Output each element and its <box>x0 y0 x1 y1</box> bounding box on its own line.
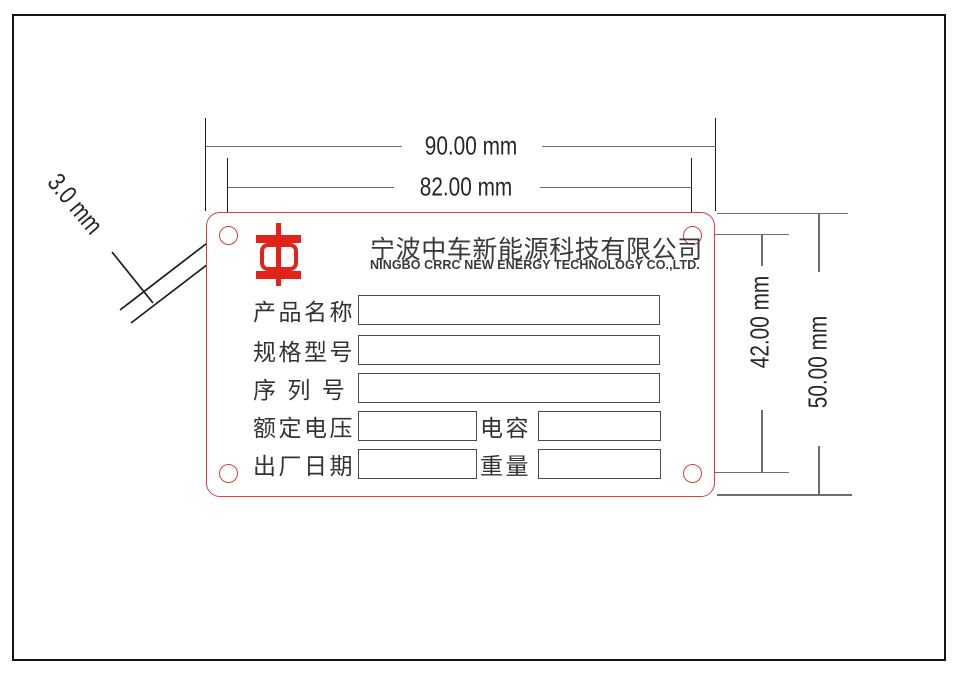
dimension-label-hole-spacing-v: 42.00 mm <box>745 276 776 368</box>
field-box-manufacture-date <box>358 449 477 479</box>
extension-line-90-left <box>205 118 207 211</box>
dimension-line-42-lower <box>761 410 763 472</box>
field-box-capacitance <box>538 411 661 441</box>
crrc-logo <box>256 223 301 286</box>
dimension-line-82-right <box>540 187 692 189</box>
field-label-spec-model: 规格型号 <box>253 335 355 365</box>
mounting-hole-bottom-left <box>219 464 238 483</box>
dimension-line-50-upper <box>818 213 820 272</box>
field-box-rated-voltage <box>358 411 477 441</box>
field-label-manufacture-date: 出厂日期 <box>253 449 355 479</box>
dimension-line-50-lower <box>818 446 820 495</box>
dimension-label-total-width: 90.00 mm <box>425 131 517 162</box>
dimension-line-82-left <box>228 187 394 189</box>
dimension-line-90-right <box>542 146 716 148</box>
dimension-label-hole-spacing-h: 82.00 mm <box>420 172 512 203</box>
mounting-hole-top-left <box>219 226 238 245</box>
extension-line-42-top <box>706 234 789 236</box>
extension-line-50-top <box>717 213 848 215</box>
field-label-weight: 重量 <box>480 449 531 479</box>
extension-line-90-right <box>715 118 717 211</box>
mounting-hole-bottom-right <box>683 464 702 483</box>
field-label-product-name: 产品名称 <box>253 295 355 325</box>
dimension-line-90-left <box>206 146 402 148</box>
extension-line-50-bottom <box>717 494 852 496</box>
field-box-serial-number <box>358 373 660 403</box>
field-box-spec-model <box>358 335 660 365</box>
field-label-capacitance: 电容 <box>480 411 531 441</box>
extension-line-42-bottom <box>706 472 789 474</box>
field-label-rated-voltage: 额定电压 <box>253 411 355 441</box>
company-name-english: NINGBO CRRC NEW ENERGY TECHNOLOGY CO.,LT… <box>370 258 700 272</box>
logo-bottom-bar <box>256 271 301 279</box>
dimension-line-42-upper <box>761 234 763 266</box>
dimension-label-total-height: 50.00 mm <box>803 316 834 408</box>
logo-top-bar <box>256 235 301 243</box>
field-box-weight <box>538 449 661 479</box>
field-label-serial-number: 序 列 号 <box>253 373 347 403</box>
field-box-product-name <box>358 295 660 325</box>
technical-drawing: 90.00 mm 82.00 mm 42.00 mm 50.00 mm 3.0 … <box>0 0 960 678</box>
logo-rounded-box <box>260 243 298 271</box>
